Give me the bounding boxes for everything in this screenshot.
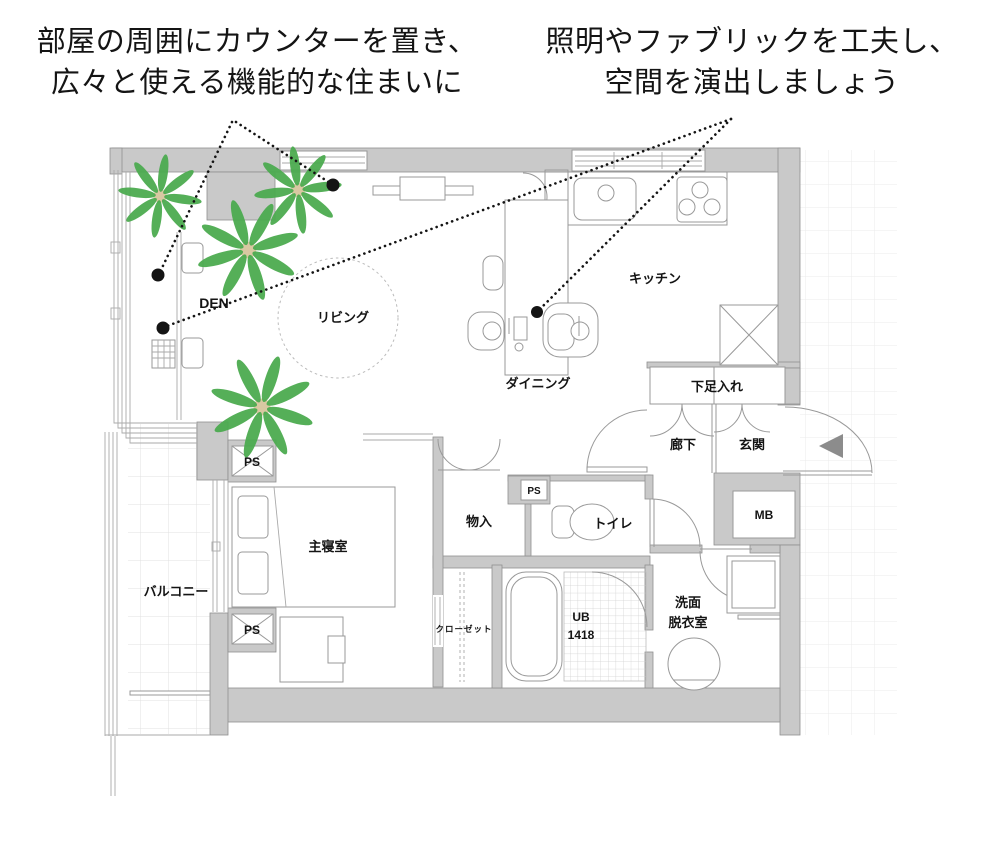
window-line [363,434,433,440]
background-grid [800,150,897,735]
wall-segment [110,148,122,174]
wall-segment [750,545,780,553]
entrance-step-line [712,404,716,473]
label-balcony: バルコニー [144,584,209,599]
label-hallway: 廊下 [670,437,696,452]
wall-segment [492,565,502,688]
label-storage: 物入 [466,514,492,529]
vanity [727,556,780,613]
den-counter [177,232,181,420]
callout-dot [152,269,165,282]
bath-floor-tiles [564,572,646,681]
callout-dot [327,179,340,192]
shoe-storage-door-arcs [650,404,714,436]
label-pipe-shaft: PS [244,623,260,637]
railing-lines [111,736,115,796]
label-unit-bath-size: 1418 [568,628,595,642]
person-figure [483,322,501,340]
label-bedroom: 主寝室 [308,539,347,554]
label-dining: ダイニング [505,376,570,391]
label-toilet: トイレ [593,516,632,531]
hallway-door-arc [587,410,647,470]
balcony-divider [130,691,210,695]
wall-segment [785,368,800,404]
label-meter-box: MB [755,508,774,522]
bathtub [506,572,562,681]
stool [328,636,345,663]
wall-segment [650,545,702,553]
kitchen-sink [574,178,636,220]
wall-segment [433,437,443,687]
vanity-shelf [738,615,780,619]
den-shelf [152,340,175,368]
den-chair [182,243,203,273]
label-den: DEN [199,295,229,311]
wall-segment [433,556,650,568]
window-latch [111,308,120,319]
top-counter-shelf [400,177,445,200]
hallway-door-leaf [587,467,647,472]
sliding-door-lines [213,480,228,612]
floor-plan-drawing: DEN リビング キッチン ダイニング 下足入れ 廊下 玄関 MB PS PS … [0,0,1000,857]
label-washroom-line2: 脱衣室 [668,615,707,630]
label-pipe-shaft: PS [244,455,260,469]
door-gap [433,595,443,647]
railing-lines [105,432,117,736]
wall-segment [780,545,800,735]
wall-segment [525,503,531,556]
label-unit-bath: UB [572,610,590,624]
label-shoe-storage: 下足入れ [691,379,743,394]
dining-furniture [468,200,598,375]
label-washroom-line1: 洗面 [675,595,701,610]
label-entrance: 玄関 [739,437,765,452]
person-figure [548,314,574,350]
washing-machine [668,638,720,690]
label-closet: クローゼット [435,624,492,634]
unit-bath [506,572,647,681]
label-living: リビング [317,310,369,325]
wall-segment [212,688,780,722]
entrance-closet-door-arcs [714,404,770,432]
callout-dot [157,322,170,335]
floor-plan-page: 部屋の周囲にカウンターを置き、 広々と使える機能的な住まいに 照明やファブリック… [0,0,1000,857]
callout-dot [531,306,543,318]
label-pipe-shaft: PS [527,486,541,497]
wall-segment [210,613,228,735]
person-figure [571,322,589,340]
dining-chair [483,256,503,290]
window-latch [111,242,120,253]
den-chair [182,338,203,368]
wall-segment [645,475,653,499]
label-kitchen: キッチン [629,271,681,286]
storage-door-arcs [438,439,500,470]
toilet-door-leaf [650,499,654,547]
toilet-door-arc [652,499,700,547]
bedroom-furniture [232,487,395,682]
